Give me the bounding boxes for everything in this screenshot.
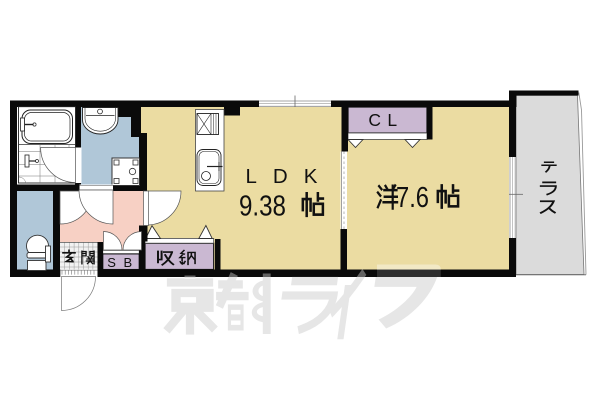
svg-text:7.6: 7.6 [396,182,429,214]
svg-text:SB: SB [107,255,139,270]
svg-text:9.38: 9.38 [239,191,286,223]
svg-text:CL: CL [368,110,403,130]
svg-text:LDK: LDK [246,165,334,188]
